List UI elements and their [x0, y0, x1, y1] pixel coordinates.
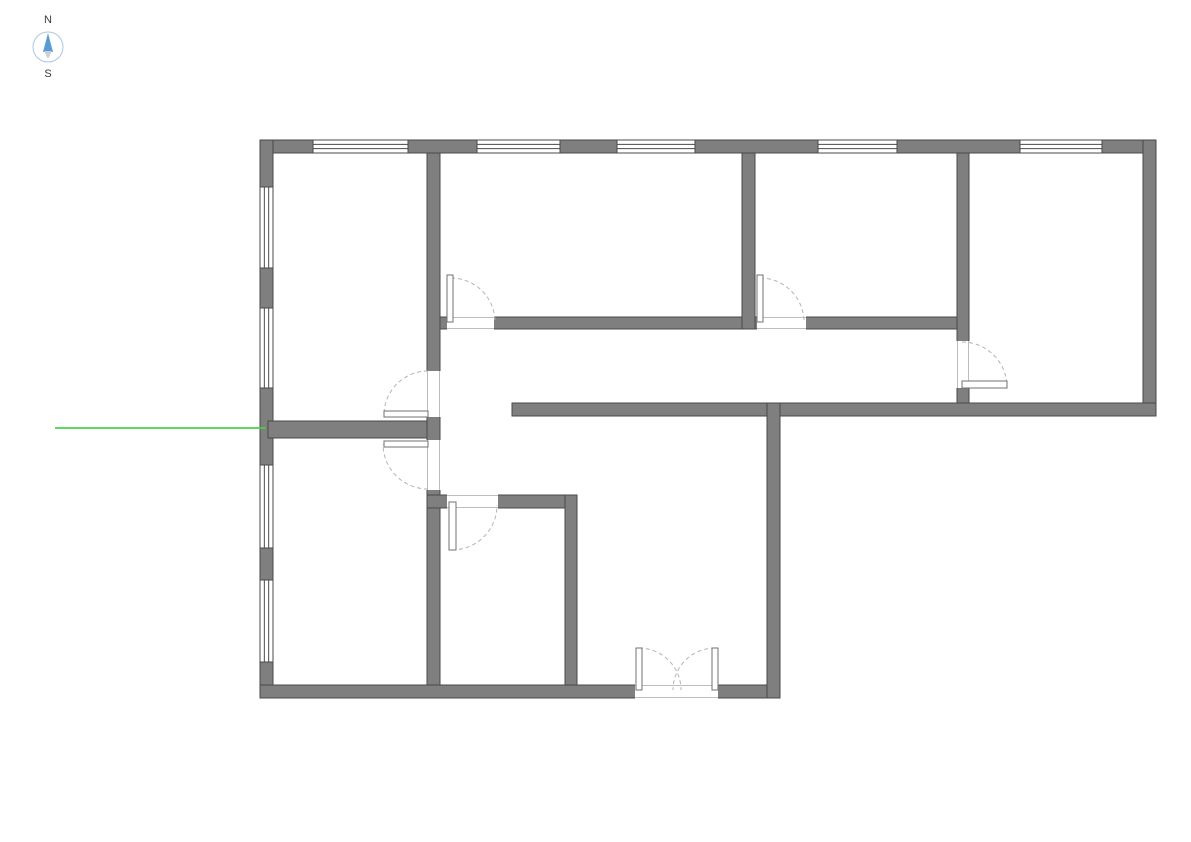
door-opening	[426, 371, 441, 417]
double-door-left[interactable]	[636, 648, 681, 690]
compass: N S	[33, 14, 63, 80]
window[interactable]	[1020, 140, 1102, 153]
door-leaf[interactable]	[449, 502, 456, 550]
door-swing-arc	[383, 444, 428, 489]
door-leaf[interactable]	[757, 275, 763, 322]
door-swing-arc	[384, 371, 428, 415]
door-leaf[interactable]	[384, 441, 428, 447]
door-top-right-room[interactable]	[757, 275, 804, 322]
door-leaf[interactable]	[447, 275, 453, 322]
door-swing-arc	[451, 278, 495, 322]
window[interactable]	[260, 308, 273, 388]
window[interactable]	[260, 465, 273, 548]
walls-layer	[260, 140, 1156, 698]
floor-plan: N S	[0, 0, 1191, 842]
compass-south-label: S	[44, 68, 51, 80]
wall-interior-v1[interactable]	[427, 153, 440, 685]
window[interactable]	[477, 140, 560, 153]
door-opening	[447, 316, 494, 330]
windows-layer	[260, 140, 1102, 662]
door-swing-arc	[639, 648, 681, 690]
door-small-room[interactable]	[449, 502, 497, 550]
door-swing-arc	[452, 505, 497, 550]
door-opening	[635, 684, 718, 699]
door-leaf[interactable]	[384, 411, 428, 417]
window[interactable]	[617, 140, 695, 153]
wall-interior-v2[interactable]	[742, 153, 755, 329]
doors-layer	[383, 275, 1007, 690]
door-opening	[757, 316, 806, 330]
door-leaf[interactable]	[712, 648, 718, 690]
wall-exterior-right[interactable]	[1143, 140, 1156, 416]
wall-south-band[interactable]	[512, 403, 1156, 416]
door-bottom-left-room[interactable]	[383, 441, 428, 489]
wall-corridor-north[interactable]	[440, 317, 957, 329]
door-leaf[interactable]	[962, 381, 1007, 388]
window[interactable]	[260, 580, 273, 662]
door-top-middle-room[interactable]	[447, 275, 495, 322]
door-swing-arc	[760, 278, 804, 322]
wall-smallroom-right[interactable]	[565, 495, 577, 685]
door-leaf[interactable]	[636, 648, 642, 690]
door-swing-arc	[673, 648, 715, 690]
floorplan-canvas: N S	[0, 0, 1191, 842]
window[interactable]	[260, 187, 273, 268]
window[interactable]	[313, 140, 408, 153]
window[interactable]	[818, 140, 897, 153]
door-top-left-room[interactable]	[384, 371, 428, 417]
compass-south-needle-icon	[44, 51, 52, 59]
compass-north-label: N	[44, 14, 52, 26]
compass-north-needle-icon	[43, 33, 53, 52]
wall-east-wing[interactable]	[767, 403, 780, 698]
wall-divider-left-rooms[interactable]	[268, 421, 427, 438]
double-door-right[interactable]	[673, 648, 718, 690]
